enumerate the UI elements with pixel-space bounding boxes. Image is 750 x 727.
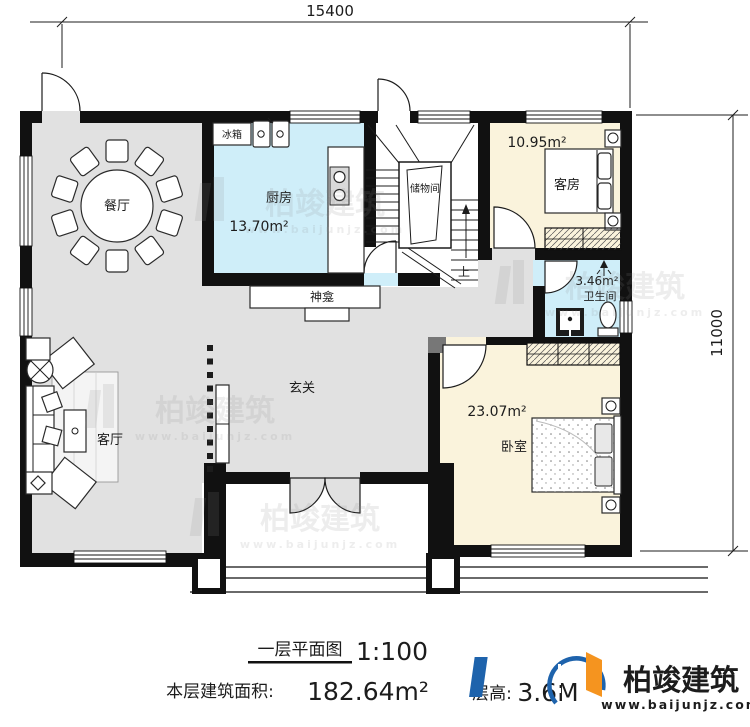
end-table <box>26 338 50 360</box>
bedroom-area: 23.07m² <box>467 404 526 420</box>
coffee-table <box>64 410 86 452</box>
brand-website: www.baijunjz.com <box>601 697 750 712</box>
svg-text:www.baijunjz.com: www.baijunjz.com <box>545 306 705 319</box>
living-front-window <box>74 551 166 563</box>
porch <box>190 553 708 594</box>
pillow <box>595 457 612 486</box>
area-value: 182.64m² <box>307 677 429 706</box>
svg-text:www.baijunjz.com: www.baijunjz.com <box>245 223 405 236</box>
bedroom-label: 卧室 <box>501 439 527 455</box>
pillow <box>595 424 612 453</box>
guestroom-window <box>526 111 602 123</box>
svg-text:柏竣建筑: 柏竣建筑 <box>565 270 685 305</box>
dining-label: 餐厅 <box>104 198 130 214</box>
cushion <box>42 426 62 446</box>
pillow <box>598 183 611 209</box>
dining-exterior-door <box>42 73 80 111</box>
fridge-label: 冰箱 <box>222 128 242 141</box>
svg-text:www.baijunjz.com: www.baijunjz.com <box>240 538 400 551</box>
nightstand <box>602 398 620 414</box>
guestroom-label: 客房 <box>554 177 580 193</box>
bedroom-wardrobe <box>527 343 620 365</box>
svg-text:柏竣建筑: 柏竣建筑 <box>265 187 385 222</box>
plan-title: 一层平面图 <box>258 640 343 660</box>
svg-text:www.baijunjz.com: www.baijunjz.com <box>135 430 295 443</box>
shrine-stool <box>305 308 349 321</box>
nightstand <box>602 497 620 513</box>
dim-width-label: 15400 <box>306 2 354 20</box>
storage-label: 储物间 <box>410 182 440 195</box>
stair-window <box>418 111 470 123</box>
floorplan-page: 15400 11000 餐厅 厨房 13.70m² 冰箱 储物间 上 10.95… <box>0 0 750 727</box>
porch-column <box>192 553 226 594</box>
shrine-label: 神龛 <box>310 290 334 304</box>
dim-height-label: 11000 <box>708 309 726 357</box>
hall-label: 玄关 <box>289 381 315 396</box>
area-label: 本层建筑面积: <box>166 682 274 702</box>
headboard <box>614 416 621 494</box>
stair-exterior-door <box>378 79 410 111</box>
brand-name: 柏竣建筑 <box>623 663 739 697</box>
living-label: 客厅 <box>97 432 123 448</box>
guest-wardrobe <box>545 228 621 250</box>
kitchen-window <box>290 111 360 123</box>
pillow <box>598 153 611 179</box>
floorplan-drawing: 15400 11000 餐厅 厨房 13.70m² 冰箱 储物间 上 10.95… <box>0 0 750 727</box>
svg-text:柏竣建筑: 柏竣建筑 <box>260 502 380 537</box>
stairs-up-label: 上 <box>458 265 470 279</box>
plan-scale: 1:100 <box>356 637 428 666</box>
guestroom-area: 10.95m² <box>507 135 566 151</box>
living-side-window <box>20 288 32 336</box>
svg-text:柏竣建筑: 柏竣建筑 <box>155 394 275 429</box>
porch-column <box>426 553 460 594</box>
bedroom-window <box>491 545 585 557</box>
dining-window <box>20 156 32 246</box>
title-block: 一层平面图 1:100 本层建筑面积: 182.64m² 层高: 3.6M <box>166 637 579 707</box>
title-underline <box>248 661 352 664</box>
